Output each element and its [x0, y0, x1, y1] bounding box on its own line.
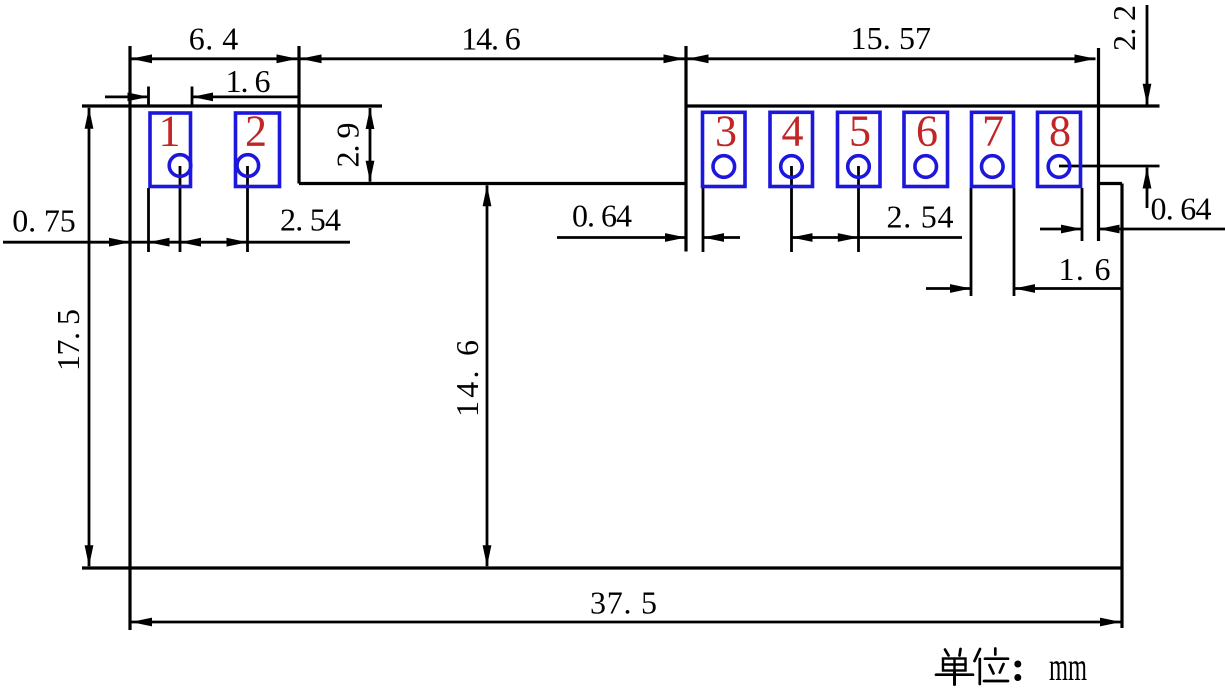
- svg-text:0. 64: 0. 64: [572, 198, 632, 234]
- svg-text:0. 75: 0. 75: [12, 203, 76, 239]
- svg-text:0. 64: 0. 64: [1151, 191, 1212, 227]
- svg-text:4: 4: [782, 107, 804, 156]
- svg-text:2. 2: 2. 2: [1106, 5, 1142, 51]
- svg-text:1: 1: [159, 107, 181, 156]
- svg-text:15. 57: 15. 57: [851, 20, 932, 56]
- svg-text:8: 8: [1049, 107, 1071, 156]
- svg-text:1. 6: 1. 6: [1059, 251, 1111, 287]
- svg-text:2: 2: [245, 107, 267, 156]
- svg-text:7: 7: [982, 107, 1004, 156]
- svg-text:14. 6: 14. 6: [461, 21, 521, 57]
- svg-text:2. 54: 2. 54: [887, 199, 954, 235]
- svg-text:14. 6: 14. 6: [449, 340, 485, 417]
- svg-text:37. 5: 37. 5: [590, 585, 657, 621]
- svg-text:2. 9: 2. 9: [330, 123, 366, 168]
- svg-text:17. 5: 17. 5: [50, 309, 86, 371]
- svg-text:1. 6: 1. 6: [226, 63, 271, 99]
- svg-text:6: 6: [916, 107, 938, 156]
- svg-text:mm: mm: [1049, 644, 1087, 689]
- svg-text:6. 4: 6. 4: [189, 21, 239, 57]
- svg-text:2. 54: 2. 54: [280, 202, 341, 238]
- svg-text:5: 5: [849, 107, 871, 156]
- svg-text:3: 3: [715, 107, 737, 156]
